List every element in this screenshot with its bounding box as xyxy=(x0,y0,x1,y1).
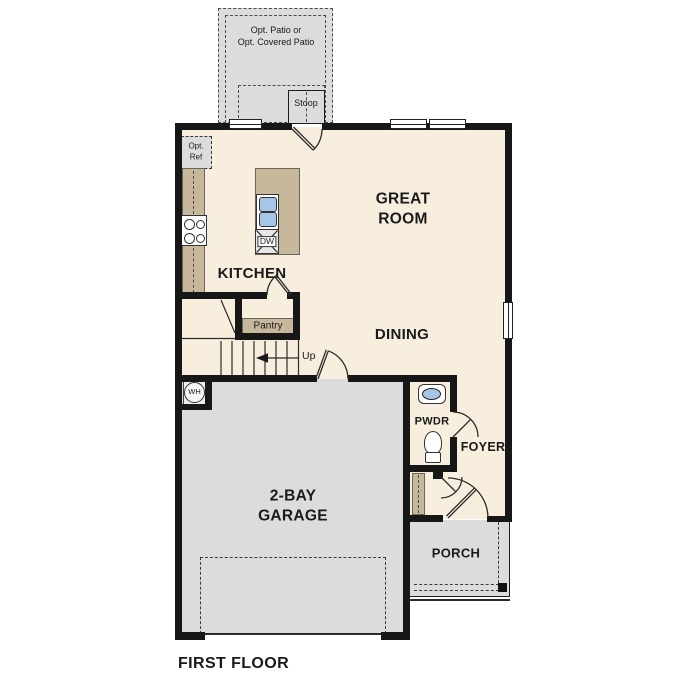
dishwasher-label: DW xyxy=(257,236,276,248)
wall-porch-top-right xyxy=(487,516,512,522)
counter-centerline-1 xyxy=(193,171,194,214)
wall-kitchen-a xyxy=(175,292,267,299)
wall-dining-a xyxy=(175,375,317,382)
up-label: Up xyxy=(302,350,315,364)
island-sink-icon xyxy=(256,194,279,230)
water-heater-label: WH xyxy=(188,387,201,397)
sink-basin xyxy=(259,212,277,227)
closet-shelf-centerline xyxy=(418,475,419,513)
wall-foyer-bottom xyxy=(403,515,443,522)
optional-refrigerator-label: Opt. Ref xyxy=(188,141,203,162)
porch-column xyxy=(498,583,507,592)
floor-plan: Opt. Patio or Opt. Covered Patio Stoop O… xyxy=(0,0,687,687)
porch-label: PORCH xyxy=(432,544,480,561)
plan-title: FIRST FLOOR xyxy=(178,655,289,673)
wall-garage-bottom-left xyxy=(175,632,205,640)
cooktop-icon xyxy=(181,215,207,246)
wall-closet-jamb xyxy=(433,472,443,479)
stoop-label: Stoop xyxy=(294,98,318,110)
dining-label: DINING xyxy=(375,325,429,345)
wall-wh-bottom xyxy=(181,404,212,410)
window-kitchen xyxy=(229,119,262,129)
kitchen-label: KITCHEN xyxy=(218,264,287,284)
toilet-tank xyxy=(425,452,441,463)
porch-dashed-vertical xyxy=(498,522,499,588)
wall-pwdr-right-a xyxy=(450,375,457,412)
window-mullion xyxy=(430,124,465,125)
sink-basin xyxy=(259,197,277,212)
garage-label: 2-BAY GARAGE xyxy=(258,487,328,528)
garage-door-dashed-outline xyxy=(200,557,386,634)
toilet-icon xyxy=(424,431,442,454)
porch-dashed-horizontal-1 xyxy=(414,584,499,585)
wall-garage-right xyxy=(403,375,410,640)
burner xyxy=(184,219,195,230)
sink-bowl xyxy=(422,388,441,400)
counter-centerline-2 xyxy=(193,248,194,293)
burner xyxy=(196,220,205,229)
wall-garage-bottom-right xyxy=(381,632,410,640)
burner xyxy=(184,233,195,244)
wall-pantry-bottom xyxy=(235,333,300,340)
foyer-label: FOYER xyxy=(461,439,506,456)
window-mullion xyxy=(230,124,261,125)
powder-room-label: PWDR xyxy=(415,415,450,430)
porch-dashed-horizontal-2 xyxy=(414,590,499,591)
garage-opening-line xyxy=(205,633,381,635)
wall-pwdr-bottom xyxy=(403,465,457,472)
patio-label: Opt. Patio or Opt. Covered Patio xyxy=(238,25,315,49)
window-greatroom-2 xyxy=(429,119,466,129)
great-room-label: GREAT ROOM xyxy=(376,190,431,231)
window-mullion xyxy=(508,303,509,338)
window-dining xyxy=(503,302,513,339)
burner xyxy=(196,234,205,243)
window-mullion xyxy=(391,124,426,125)
porch-step-line xyxy=(407,599,510,601)
window-greatroom-1 xyxy=(390,119,427,129)
pantry-label: Pantry xyxy=(254,319,283,332)
